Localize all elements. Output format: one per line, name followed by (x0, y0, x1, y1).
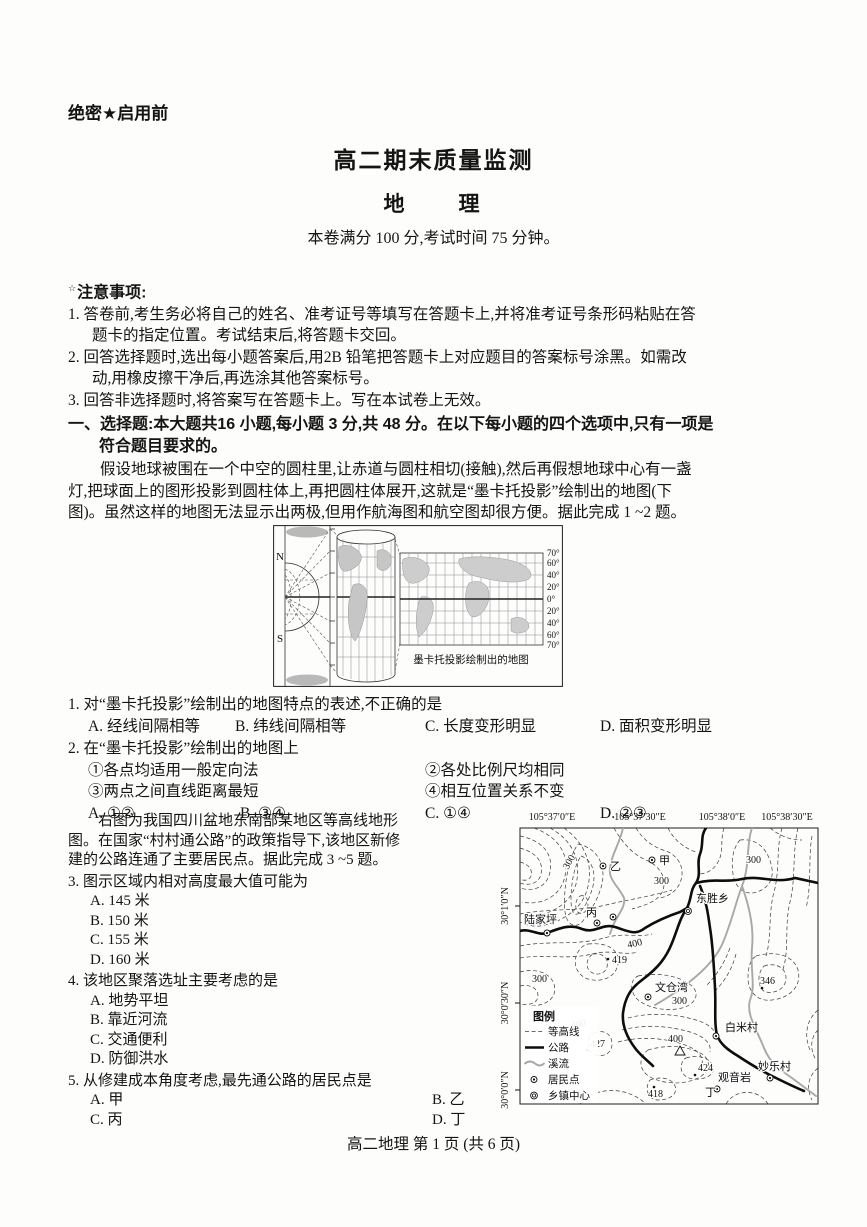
section-heading: 一、选择题:本大题共16 小题,每小题 3 分,共 48 分。在以下每小题的四个… (68, 414, 836, 458)
question-stem: 2. 在“墨卡托投影”绘制出的地图上 (68, 738, 836, 760)
mercator-figure-svg: N S (273, 525, 563, 687)
contour-map-svg: 105°37′0″E 105°37′30″E 105°38′0″E 105°38… (490, 798, 822, 1120)
classification-label: 绝密★启用前 (68, 103, 168, 125)
legend-road-label: 公路 (548, 1041, 569, 1054)
place-label-wencangwan: 文仓湾 (655, 980, 688, 994)
strip-top-shade (286, 527, 328, 538)
option-a: A. 经线间隔相等 (88, 716, 235, 738)
lat-label: 40° (547, 618, 560, 628)
passage-line: 假设地球被围在一个中空的圆柱里,让赤道与圆柱相切(接触),然后再假想地球中心有一… (68, 459, 830, 481)
settlement-bing (594, 920, 600, 926)
cylinder-icon (337, 530, 395, 682)
option-d: D. 160 米 (90, 951, 503, 971)
lat-label: 70° (547, 640, 560, 650)
section-heading-line: 符合题目要求的。 (68, 436, 836, 458)
question-stem: 4. 该地区聚落选址主要考虑的是 (68, 972, 503, 992)
passage-line: 图)。虽然这样的地图无法显示出两极,但用作航海图和航空图却很方便。据此完成 1 … (68, 502, 830, 524)
passage-line: 灯,把球面上的图形投影到圆柱体上,再把圆柱体展开,这就是“墨卡托投影”绘制出的地… (68, 481, 830, 503)
place-label-yi: 乙 (610, 860, 621, 873)
option-b: B. 纬线间隔相等 (235, 716, 425, 738)
place-label-bing: 丙 (586, 907, 597, 919)
question-stem: 3. 图示区域内相对高度最大值可能为 (68, 873, 503, 893)
option-a: A. 甲 (90, 1091, 432, 1111)
section-heading-line: 一、选择题:本大题共16 小题,每小题 3 分,共 48 分。在以下每小题的四个… (68, 414, 836, 436)
settlement-lujiaping (544, 930, 550, 936)
lat-label: 70° (547, 548, 560, 558)
statement-3: ③两点之间直线距离最短 (88, 781, 425, 803)
contour-label: 400 (626, 937, 643, 951)
option-c: C. 交通便利 (90, 1031, 503, 1051)
exam-info: 本卷满分 100 分,考试时间 75 分钟。 (0, 228, 867, 250)
option-b: B. 靠近河流 (90, 1011, 503, 1031)
lon-label: 105°37′30″E (614, 812, 665, 823)
place-label-lujiaping: 陆家坪 (524, 912, 557, 926)
settlement-unnamed (610, 914, 616, 920)
question-stem: 1. 对“墨卡托投影”绘制出的地图特点的表述,不正确的是 (68, 694, 836, 716)
mercator-map: 70° 60° 40° 20° 0° 20° 40° 60° 70° 墨卡托投影… (400, 548, 560, 666)
spot-height: 424 (698, 1063, 713, 1074)
contour-label: 300 (672, 996, 687, 1007)
contour-label: 300 (746, 855, 761, 866)
legend-township-label: 乡镇中心 (548, 1089, 590, 1102)
questions-3-5-column: 右图为我国四川盆地东南部某地区等高线地形 图。在国家“村村通公路”的政策指导下,… (68, 812, 503, 1130)
passage-line: 图。在国家“村村通公路”的政策指导下,该地区新修 (68, 832, 503, 852)
notes-heading: ☆注意事项: (68, 278, 830, 304)
contour-label: 300 (654, 876, 669, 887)
note-line: 3. 回答非选择题时,将答案写在答题卡上。写在本试卷上无效。 (68, 390, 830, 412)
figure-caption: 墨卡托投影绘制出的地图 (413, 653, 529, 666)
question-stem: 5. 从修建成本角度考虑,最先通公路的居民点是 (68, 1072, 503, 1092)
option-c: C. 155 米 (90, 931, 503, 951)
strip-bottom-shade (286, 675, 328, 686)
contour-label: 400 (668, 1034, 683, 1045)
page-footer: 高二地理 第 1 页 (共 6 页) (0, 1134, 867, 1156)
passage-line: 右图为我国四川盆地东南部某地区等高线地形 (68, 812, 503, 832)
south-pole-label: S (277, 633, 283, 645)
exam-paper-page: 绝密★启用前 高二期末质量监测 地 理 本卷满分 100 分,考试时间 75 分… (0, 0, 867, 1227)
settlement-wencangwan (645, 994, 651, 1000)
place-label-miaolecun: 妙乐村 (758, 1059, 791, 1073)
lat-label: 30°0′30″N (500, 982, 511, 1025)
legend-contour-label: 等高线 (548, 1025, 580, 1038)
question-5: 5. 从修建成本角度考虑,最先通公路的居民点是 A. 甲 B. 乙 C. 丙 D… (68, 1072, 503, 1131)
lat-label: 20° (547, 606, 560, 616)
lon-label: 105°38′30″E (761, 812, 812, 823)
settlement-miaolecun (767, 1075, 773, 1081)
lat-label: 60° (547, 630, 560, 640)
place-label-ding: 丁 (705, 1087, 716, 1099)
township-dongsheng (685, 908, 692, 915)
place-label-jia: 甲 (659, 855, 670, 867)
exam-title: 高二期末质量监测 (0, 150, 867, 172)
notes-section: ☆注意事项: 1. 答卷前,考生务必将自己的姓名、准考证号等填写在答题卡上,并将… (68, 278, 830, 411)
star-icon: ☆ (68, 283, 76, 293)
notes-heading-text: 注意事项: (77, 284, 146, 301)
legend-stream-label: 溪流 (548, 1057, 569, 1070)
contour-map-figure: 105°37′0″E 105°37′30″E 105°38′0″E 105°38… (490, 798, 822, 1127)
place-label-guanyinyan: 观音岩 (718, 1070, 751, 1084)
question-3: 3. 图示区域内相对高度最大值可能为 A. 145 米 B. 150 米 C. … (68, 873, 503, 971)
globe-icon (285, 563, 330, 631)
question-4: 4. 该地区聚落选址主要考虑的是 A. 地势平坦 B. 靠近河流 C. 交通便利… (68, 972, 503, 1070)
question-1: 1. 对“墨卡托投影”绘制出的地图特点的表述,不正确的是 A. 经线间隔相等 B… (68, 694, 836, 737)
option-a: A. 地势平坦 (90, 992, 503, 1012)
option-c: C. 长度变形明显 (425, 716, 600, 738)
spot-height: 419 (612, 955, 627, 966)
note-line: 题卡的指定位置。考试结束后,将答题卡交回。 (68, 325, 830, 347)
passage-mercator: 假设地球被围在一个中空的圆柱里,让赤道与圆柱相切(接触),然后再假想地球中心有一… (68, 459, 830, 524)
legend-title: 图例 (533, 1009, 555, 1023)
spot-height: 418 (648, 1089, 663, 1100)
north-pole-label: N (276, 551, 284, 563)
option-b: B. 150 米 (90, 912, 503, 932)
lat-label: 0° (547, 594, 556, 604)
settlement-yi (600, 863, 606, 869)
contour-label: 300 (561, 853, 578, 871)
statement-1: ①各点均适用一般定向法 (88, 760, 425, 782)
option-c: C. 丙 (90, 1111, 432, 1131)
lon-label: 105°38′0″E (699, 812, 745, 823)
lon-label: 105°37′0″E (529, 812, 575, 823)
statement-2: ②各处比例尺均相同 (425, 760, 836, 782)
contour-label: 300 (532, 974, 547, 985)
lat-label: 60° (547, 558, 560, 568)
passage-contour-map: 右图为我国四川盆地东南部某地区等高线地形 图。在国家“村村通公路”的政策指导下,… (68, 812, 503, 871)
place-label-baimicun: 白米村 (725, 1020, 758, 1034)
map-legend: 图例 等高线 公路 溪流 居民点 乡镇中心 (522, 1006, 598, 1103)
option-d: D. 面积变形明显 (600, 716, 836, 738)
legend-settlement-label: 居民点 (548, 1074, 580, 1086)
option-d: D. 防御洪水 (90, 1050, 503, 1070)
note-line: 2. 回答选择题时,选出每小题答案后,用2B 铅笔把答题卡上对应题目的答案标号涂… (68, 347, 830, 369)
lat-label: 30°1′0″N (500, 887, 511, 925)
lat-label: 40° (547, 570, 560, 580)
lat-label: 30°0′0″N (500, 1071, 511, 1109)
subject-title: 地 理 (0, 194, 867, 216)
settlement-jia (649, 857, 655, 863)
lat-label: 20° (547, 582, 560, 592)
note-line: 1. 答卷前,考生务必将自己的姓名、准考证号等填写在答题卡上,并将准考证号条形码… (68, 304, 830, 326)
settlement-baimicun (713, 1033, 719, 1039)
mercator-figure: N S (273, 525, 563, 694)
note-line: 动,用橡皮擦干净后,再选涂其他答案标号。 (68, 368, 830, 390)
passage-line: 建的公路连通了主要居民点。据此完成 3 ~5 题。 (68, 851, 503, 871)
place-label-dongsheng: 东胜乡 (696, 891, 729, 905)
spot-height: 346 (760, 976, 775, 987)
option-a: A. 145 米 (90, 892, 503, 912)
